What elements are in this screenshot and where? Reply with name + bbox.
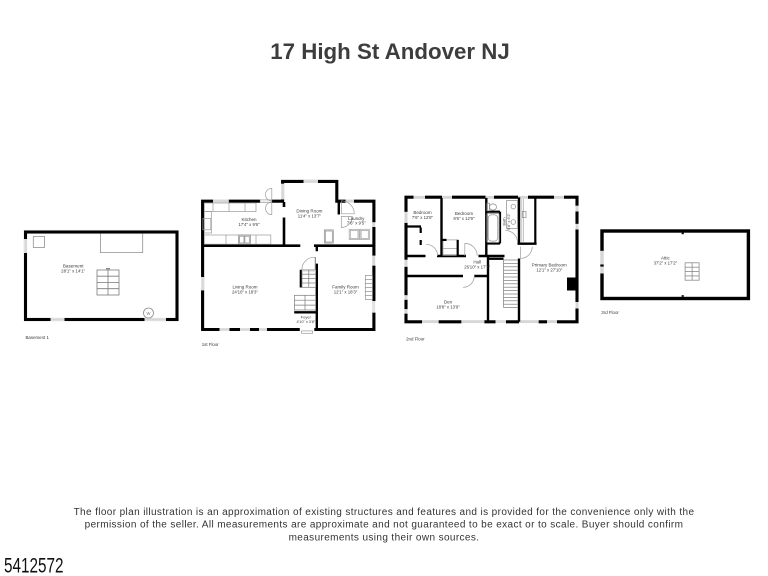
svg-text:Basement: Basement (63, 263, 84, 268)
svg-text:The floor plan illustration is: The floor plan illustration is an approx… (74, 507, 695, 518)
svg-text:measurements using their own s: measurements using their own sources. (289, 532, 480, 543)
svg-text:24'10" x 18'3": 24'10" x 18'3" (232, 289, 258, 294)
svg-text:Foyer: Foyer (301, 315, 312, 320)
svg-text:7'6" x 9'5": 7'6" x 9'5" (347, 221, 366, 226)
svg-text:4'10" x 3'8": 4'10" x 3'8" (296, 320, 315, 324)
svg-text:1st Floor: 1st Floor (202, 342, 220, 347)
svg-text:3rd Floor: 3rd Floor (601, 310, 619, 315)
svg-text:7'6" x 12'8": 7'6" x 12'8" (412, 215, 434, 220)
svg-text:5'6" x 9'2": 5'6" x 9'2" (507, 213, 511, 230)
svg-text:37'2" x 17'2": 37'2" x 17'2" (654, 260, 678, 265)
svg-text:17'4" x 9'6": 17'4" x 9'6" (238, 222, 260, 227)
svg-text:permission of the seller. All: permission of the seller. All measuremen… (85, 520, 684, 531)
svg-text:11'4" x 13'7": 11'4" x 13'7" (298, 213, 322, 218)
svg-text:W: W (147, 311, 151, 316)
svg-text:2nd Floor: 2nd Floor (406, 336, 425, 341)
svg-text:12'1" x 27'10": 12'1" x 27'10" (536, 267, 562, 272)
svg-text:18'8" x 13'9": 18'8" x 13'9" (436, 304, 460, 309)
svg-text:5412572: 5412572 (4, 554, 64, 576)
svg-text:26'10" x 17'7": 26'10" x 17'7" (464, 264, 490, 269)
svg-text:12'1" x 18'3": 12'1" x 18'3" (334, 289, 358, 294)
svg-text:17 High St Andover NJ: 17 High St Andover NJ (270, 39, 510, 64)
svg-text:9'6" x 12'9": 9'6" x 12'9" (453, 216, 475, 221)
svg-text:Bath: Bath (501, 217, 506, 225)
svg-text:Basement 1: Basement 1 (26, 335, 50, 340)
svg-text:28'1" x 14'1": 28'1" x 14'1" (61, 269, 86, 274)
